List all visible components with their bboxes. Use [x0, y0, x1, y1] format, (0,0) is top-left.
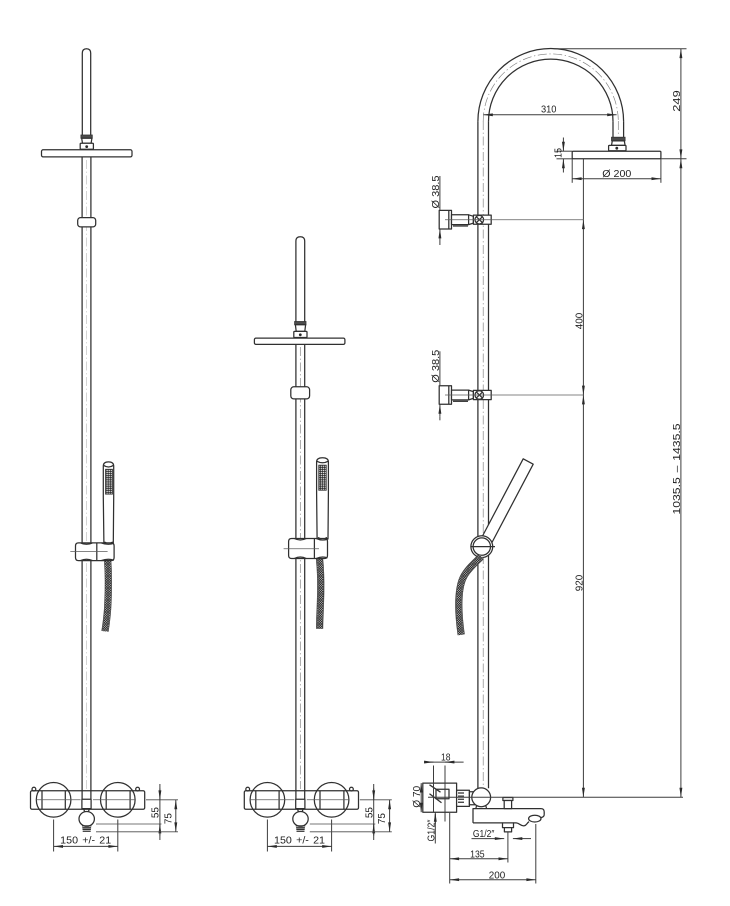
svg-text:18: 18 — [441, 751, 451, 763]
svg-text:310: 310 — [541, 103, 557, 115]
svg-text:1035.5 – 1435.5: 1035.5 – 1435.5 — [671, 423, 683, 514]
svg-text:15: 15 — [554, 148, 565, 158]
svg-text:135: 135 — [470, 849, 485, 861]
svg-text:Ø 70: Ø 70 — [411, 786, 423, 808]
svg-text:75: 75 — [162, 813, 174, 824]
svg-text:55: 55 — [364, 807, 376, 818]
svg-text:150 +/- 21: 150 +/- 21 — [60, 834, 111, 846]
svg-text:Ø 38.5: Ø 38.5 — [430, 175, 442, 208]
svg-text:920: 920 — [574, 575, 586, 592]
svg-text:400: 400 — [574, 313, 586, 330]
svg-text:75: 75 — [376, 813, 388, 824]
svg-text:G1/2″: G1/2″ — [473, 828, 495, 840]
svg-text:200: 200 — [489, 870, 506, 882]
svg-text:55: 55 — [150, 807, 162, 818]
svg-text:150 +/- 21: 150 +/- 21 — [274, 834, 325, 846]
svg-text:Ø 38.5: Ø 38.5 — [430, 350, 442, 383]
svg-text:Ø 200: Ø 200 — [602, 168, 631, 180]
svg-text:G1/2″: G1/2″ — [425, 819, 437, 841]
svg-text:249: 249 — [671, 90, 683, 112]
